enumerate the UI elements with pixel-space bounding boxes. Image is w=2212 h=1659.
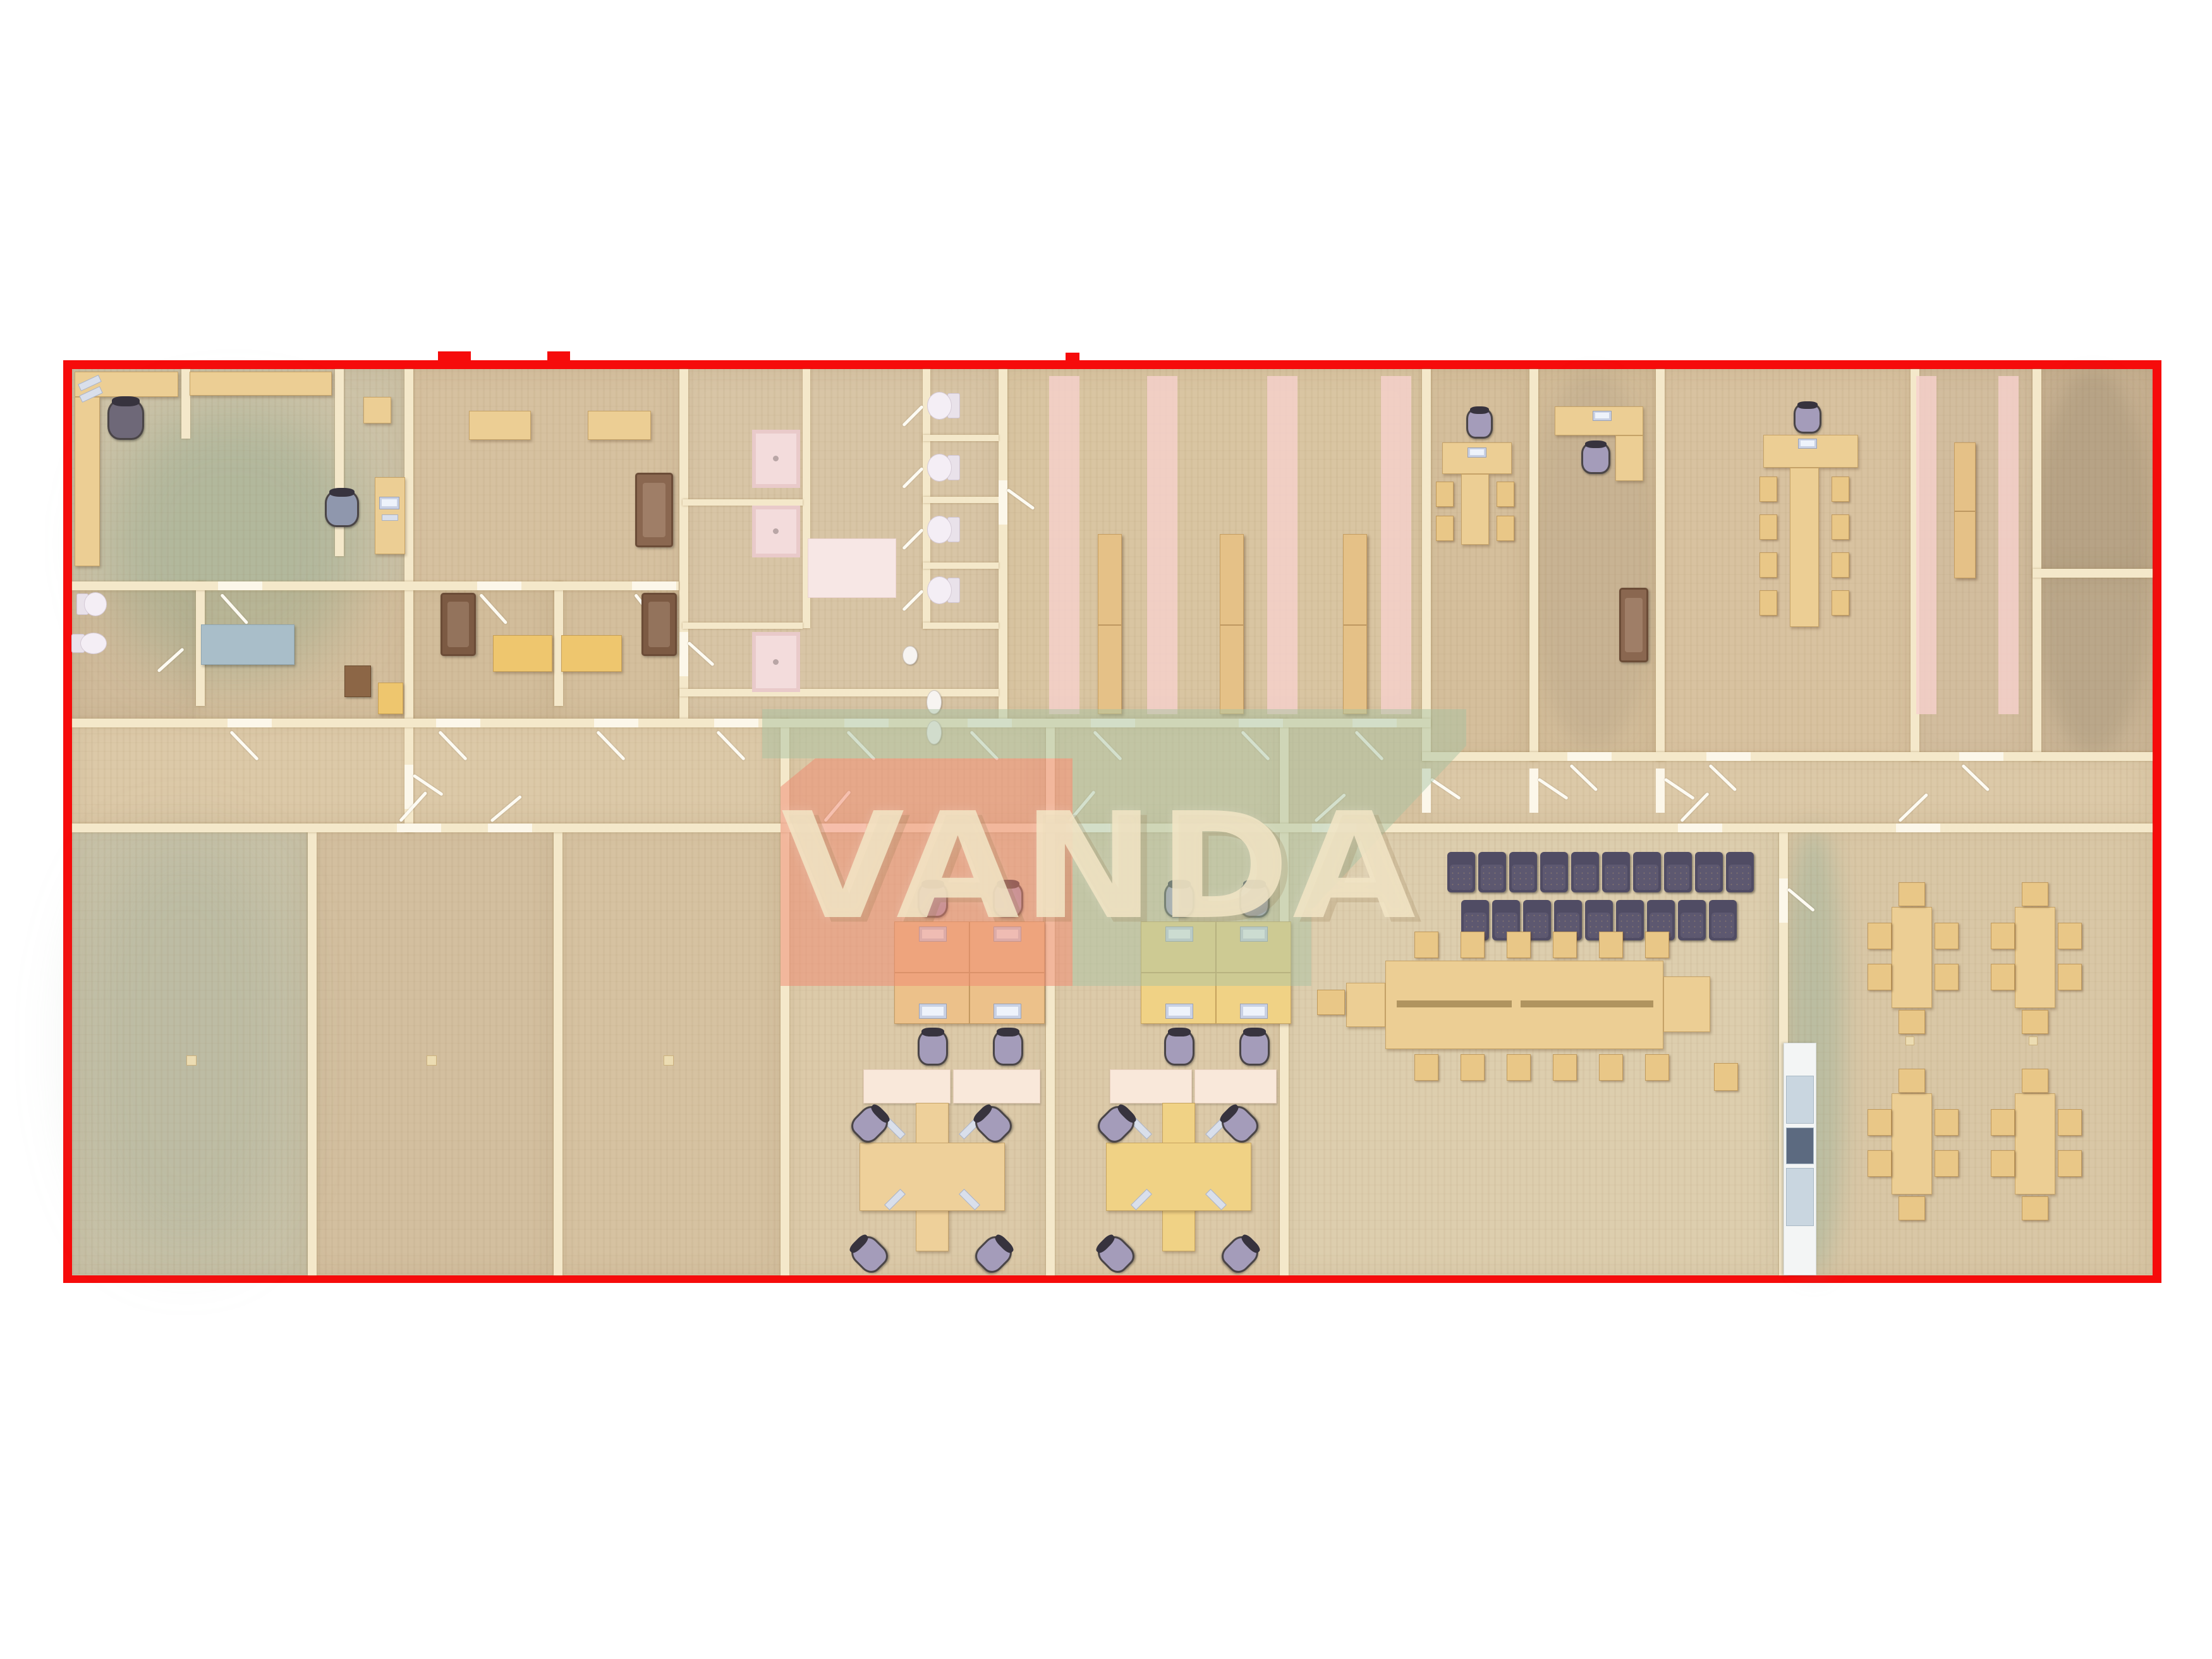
door-opening <box>594 719 638 727</box>
toilet-icon <box>76 591 106 619</box>
desk <box>1615 435 1643 481</box>
chair-icon <box>1317 990 1345 1015</box>
door-opening <box>1678 823 1722 832</box>
auditorium-seat-icon <box>1478 852 1506 892</box>
wall <box>1046 719 1055 1275</box>
shower-tray-icon <box>752 506 800 557</box>
chair-icon <box>2058 923 2082 949</box>
chair-icon <box>1991 923 2015 949</box>
shower-tray-icon <box>752 632 800 692</box>
auditorium-seat-icon <box>1571 852 1599 892</box>
sink-icon <box>927 690 942 714</box>
office-chair-icon <box>1794 403 1821 434</box>
chair-icon <box>1645 932 1669 958</box>
office-chair-icon <box>1217 1232 1263 1277</box>
chair-icon <box>1868 1109 1892 1136</box>
door-opening <box>714 719 758 727</box>
auditorium-seat-icon <box>1633 852 1661 892</box>
conference-table-groove <box>1397 1000 1512 1007</box>
door-leaf-icon <box>479 593 507 624</box>
door-opening <box>1066 823 1110 832</box>
wall <box>308 832 317 1275</box>
locker-mat-stripe <box>1381 376 1411 714</box>
door-opening <box>1352 719 1397 727</box>
kitchen-appliance-icon <box>1786 1127 1814 1164</box>
office-chair-icon <box>971 1102 1016 1147</box>
auditorium-seat-icon <box>1678 900 1706 940</box>
chair-icon <box>1714 1063 1738 1091</box>
door-opening <box>477 581 521 590</box>
divider-shelf <box>1110 1069 1192 1103</box>
door-opening <box>1656 769 1665 813</box>
office-chair-icon <box>918 882 948 918</box>
office-chair-icon <box>1164 882 1194 918</box>
door-opening <box>1959 752 2003 761</box>
desk <box>561 635 622 672</box>
chair-icon <box>1832 477 1849 502</box>
wall <box>404 369 413 832</box>
chair-icon <box>1935 964 1959 990</box>
chair-icon <box>1935 1109 1959 1136</box>
wall <box>181 369 190 439</box>
floor-lamp-dot <box>2029 1036 2038 1045</box>
divider-shelf <box>1194 1069 1277 1103</box>
wall <box>1422 752 2153 761</box>
wall-marker <box>547 351 570 362</box>
office-chair-icon <box>847 1232 892 1277</box>
wall <box>999 369 1007 719</box>
desk <box>190 372 332 396</box>
monitor-icon <box>994 927 1021 942</box>
wall <box>683 499 803 506</box>
door-leaf-icon <box>1068 790 1096 822</box>
chair-icon <box>1991 964 2015 990</box>
sofa-icon <box>441 593 476 656</box>
door-opening <box>397 823 441 832</box>
door-leaf-icon <box>902 590 924 612</box>
door-leaf-icon <box>1680 792 1710 822</box>
monitor-icon <box>919 927 947 942</box>
auditorium-seat-icon <box>1540 852 1568 892</box>
door-leaf-icon <box>229 731 259 761</box>
door-leaf-icon <box>596 731 626 761</box>
desk <box>363 397 391 423</box>
door-opening <box>1896 823 1940 832</box>
locker-bench <box>1343 534 1367 714</box>
door-opening <box>488 823 532 832</box>
wall <box>2033 569 2153 578</box>
monitor-icon <box>1165 927 1193 942</box>
wall <box>1422 369 1431 761</box>
wall <box>72 581 679 590</box>
monitor-icon <box>1593 411 1612 421</box>
monitor-icon <box>1468 447 1486 458</box>
desk <box>378 683 403 714</box>
door-leaf-icon <box>1093 731 1122 761</box>
door-leaf-icon <box>1708 764 1737 792</box>
chair-icon <box>1497 482 1514 507</box>
door-opening <box>404 765 413 809</box>
chair-icon <box>1868 1150 1892 1177</box>
door-leaf-icon <box>687 641 714 667</box>
cabinet-icon <box>344 665 371 697</box>
chair-icon <box>1759 477 1777 502</box>
locker-mat-stripe <box>1267 376 1297 714</box>
desk <box>1790 468 1819 627</box>
wall <box>923 623 999 629</box>
door-leaf-icon <box>1569 764 1598 792</box>
office-chair-icon <box>325 490 359 527</box>
door-leaf-icon <box>902 467 924 489</box>
chair-icon <box>1899 1069 1925 1093</box>
door-opening <box>218 581 262 590</box>
door-leaf-icon <box>490 795 522 823</box>
chair-icon <box>1935 1150 1959 1177</box>
chair-icon <box>2058 964 2082 990</box>
locker-mat-stripe <box>1916 376 1936 714</box>
wall <box>72 823 2153 832</box>
office-chair-icon <box>1217 1102 1263 1147</box>
monitor-icon <box>379 497 399 509</box>
chair-icon <box>1553 932 1577 958</box>
toilet-icon <box>928 389 960 422</box>
monitor-icon <box>1240 1004 1268 1019</box>
door-opening <box>1312 823 1356 832</box>
chair-icon <box>1899 1196 1925 1220</box>
locker-mat-stripe <box>1147 376 1177 714</box>
shower-tray-icon <box>752 430 800 488</box>
floor-lamp-dot <box>186 1055 197 1066</box>
door-leaf-icon <box>1354 731 1384 761</box>
sink-icon <box>902 646 918 665</box>
keyboard-icon <box>382 514 398 521</box>
chair-icon <box>1832 590 1849 616</box>
wall <box>683 623 803 629</box>
toilet-icon <box>928 451 960 483</box>
office-chair-icon <box>918 1030 948 1066</box>
desk <box>1663 976 1710 1032</box>
wall <box>923 562 999 569</box>
chair-icon <box>1507 932 1531 958</box>
door-opening <box>679 632 688 676</box>
office-chair-icon <box>1164 1030 1194 1066</box>
page: VANDA <box>0 0 2212 1659</box>
chair-icon <box>1436 482 1454 507</box>
monitor-icon <box>1240 927 1268 942</box>
desk <box>1892 907 1932 1008</box>
chair-icon <box>1759 552 1777 578</box>
desk <box>2015 907 2055 1008</box>
chair-icon <box>1899 882 1925 906</box>
door-leaf-icon <box>1314 793 1346 823</box>
chair-icon <box>1868 923 1892 949</box>
door-leaf-icon <box>1007 488 1035 510</box>
toilet-icon <box>928 573 960 606</box>
office-chair-icon <box>993 882 1023 918</box>
door-leaf-icon <box>1430 777 1461 799</box>
door-opening <box>1779 878 1788 923</box>
door-leaf-icon <box>846 731 876 761</box>
wall <box>923 435 999 441</box>
wall <box>781 719 789 1275</box>
divider-shelf <box>953 1069 1040 1103</box>
door-leaf-icon <box>902 405 924 427</box>
chair-icon <box>1599 932 1623 958</box>
monitor-icon <box>1798 439 1817 449</box>
door-leaf-icon <box>823 790 851 822</box>
sofa-icon <box>641 593 677 656</box>
locker-mat-stripe <box>1998 376 2019 714</box>
desk <box>493 635 552 672</box>
chair-icon <box>1436 516 1454 541</box>
door-opening <box>968 719 1012 727</box>
door-opening <box>999 480 1007 525</box>
walls-and-furniture-layer <box>0 0 2212 1659</box>
floor-lamp-dot <box>664 1055 674 1066</box>
door-leaf-icon <box>1664 777 1695 799</box>
floor-lamp-dot <box>427 1055 437 1066</box>
door-opening <box>844 719 889 727</box>
desk <box>1892 1093 1932 1194</box>
toilet-icon <box>928 513 960 545</box>
chair-icon <box>1414 932 1438 958</box>
wall <box>1656 369 1665 761</box>
door-leaf-icon <box>1961 764 1990 792</box>
bath-mat <box>808 538 896 598</box>
door-opening <box>632 581 676 590</box>
door-leaf-icon <box>1898 793 1928 823</box>
chair-icon <box>2022 882 2048 906</box>
door-leaf-icon <box>1538 777 1569 799</box>
auditorium-seat-icon <box>1709 900 1737 940</box>
door-leaf-icon <box>157 648 184 673</box>
chair-icon <box>1553 1054 1577 1081</box>
locker-bench <box>1098 534 1122 714</box>
office-chair-icon <box>1093 1102 1139 1147</box>
divider-shelf <box>863 1069 951 1103</box>
wall <box>335 369 344 556</box>
door-opening <box>436 719 480 727</box>
chair-icon <box>1935 923 1959 949</box>
chair-icon <box>1645 1054 1669 1081</box>
desk <box>860 1143 1005 1211</box>
chair-icon <box>2022 1196 2048 1220</box>
chair-icon <box>1868 964 1892 990</box>
treatment-table <box>201 624 295 665</box>
door-leaf-icon <box>413 774 444 796</box>
desk <box>1461 474 1489 545</box>
chair-icon <box>1414 1054 1438 1081</box>
conference-table-groove <box>1521 1000 1653 1007</box>
office-chair-icon <box>1239 1030 1270 1066</box>
chair-icon <box>1507 1054 1531 1081</box>
door-leaf-icon <box>902 528 924 550</box>
door-opening <box>1706 752 1751 761</box>
toilet-icon <box>71 631 106 657</box>
door-leaf-icon <box>1787 888 1815 913</box>
door-opening <box>1422 769 1431 813</box>
wall <box>923 497 999 503</box>
auditorium-seat-icon <box>1726 852 1754 892</box>
chair-icon <box>1832 552 1849 578</box>
door-leaf-icon <box>716 731 746 761</box>
chair-icon <box>1991 1150 2015 1177</box>
wall <box>2033 369 2041 761</box>
auditorium-seat-icon <box>1602 852 1630 892</box>
wall <box>554 832 562 1275</box>
chair-icon <box>1461 932 1485 958</box>
sofa-icon <box>635 473 673 547</box>
door-opening <box>228 719 272 727</box>
locker-mat-stripe <box>1049 376 1079 714</box>
locker-bench <box>1954 442 1976 578</box>
chair-icon <box>1759 514 1777 540</box>
desk <box>2015 1093 2055 1194</box>
wall <box>1529 369 1538 761</box>
sofa-icon <box>1619 588 1648 662</box>
chair-icon <box>1497 516 1514 541</box>
auditorium-seat-icon <box>1664 852 1692 892</box>
office-chair-icon <box>1466 408 1493 439</box>
auditorium-seat-icon <box>1509 852 1537 892</box>
door-leaf-icon <box>220 593 248 624</box>
office-chair-icon <box>971 1232 1016 1277</box>
desk <box>588 411 651 440</box>
chair-icon <box>2022 1069 2048 1093</box>
door-opening <box>1567 752 1612 761</box>
kitchen-appliance-icon <box>1786 1168 1814 1226</box>
door-opening <box>1239 719 1283 727</box>
chair-icon <box>1832 514 1849 540</box>
desk <box>1106 1143 1251 1211</box>
door-leaf-icon <box>1241 731 1270 761</box>
wall-marker <box>1066 353 1079 362</box>
chair-icon <box>1599 1054 1623 1081</box>
door-opening <box>822 823 866 832</box>
desk <box>469 411 531 440</box>
wall-marker <box>438 351 471 362</box>
floor-lamp-dot <box>1905 1036 1914 1045</box>
office-chair-icon <box>847 1102 892 1147</box>
door-leaf-icon <box>969 731 999 761</box>
door-leaf-icon <box>438 731 468 761</box>
door-opening <box>1529 769 1538 813</box>
chair-icon <box>1991 1109 2015 1136</box>
monitor-icon <box>919 1004 947 1019</box>
office-chair-icon <box>1239 882 1270 918</box>
chair-icon <box>1759 590 1777 616</box>
chair-icon <box>1899 1010 1925 1034</box>
wall <box>679 689 999 696</box>
auditorium-seat-icon <box>1695 852 1723 892</box>
locker-bench <box>1220 534 1244 714</box>
office-chair-icon <box>1581 442 1610 474</box>
desk <box>75 397 100 566</box>
door-opening <box>1091 719 1135 727</box>
monitor-icon <box>1165 1004 1193 1019</box>
desk <box>1346 983 1385 1027</box>
office-chair-icon <box>107 399 144 440</box>
sink-icon <box>927 720 942 744</box>
chair-icon <box>2058 1109 2082 1136</box>
auditorium-seat-icon <box>1447 852 1475 892</box>
office-chair-icon <box>993 1030 1023 1066</box>
chair-icon <box>1461 1054 1485 1081</box>
chair-icon <box>2022 1010 2048 1034</box>
monitor-icon <box>994 1004 1021 1019</box>
kitchen-appliance-icon <box>1786 1076 1814 1124</box>
office-chair-icon <box>1093 1232 1139 1277</box>
chair-icon <box>2058 1150 2082 1177</box>
